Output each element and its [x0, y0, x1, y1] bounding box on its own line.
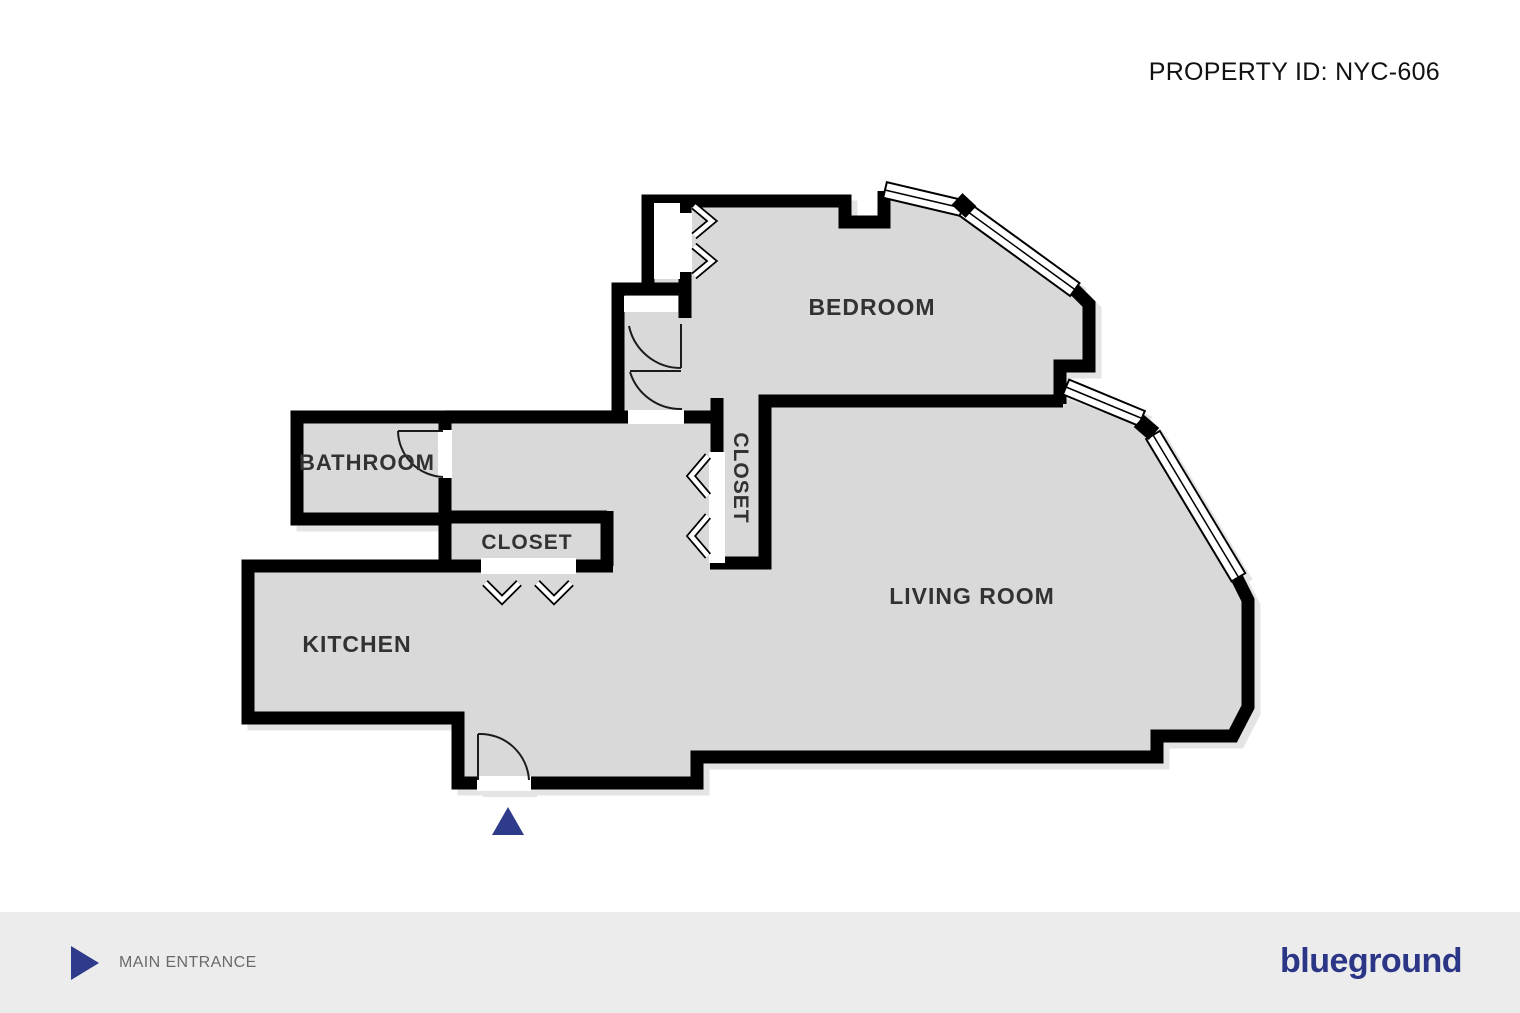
bedroom-closet-shelf	[654, 203, 680, 279]
main-entrance-triangle-icon	[492, 807, 524, 835]
floorplan-page: { "header": { "property_id_label": "PROP…	[0, 0, 1520, 1013]
entrance-legend: MAIN ENTRANCE	[71, 912, 257, 1013]
floorplan-drawing: BEDROOM LIVING ROOM KITCHEN BATHROOM CLO…	[248, 182, 1248, 791]
bathroom-label: BATHROOM	[299, 450, 435, 475]
closet-living-shelf	[709, 452, 725, 563]
closet-hall-label: CLOSET	[481, 531, 572, 554]
floorplan-canvas: BEDROOM LIVING ROOM KITCHEN BATHROOM CLO…	[0, 0, 1520, 1013]
entry-floor	[453, 712, 703, 787]
entrance-triangle-icon	[71, 946, 99, 980]
entrance-door-opening	[477, 776, 531, 791]
window-joint	[957, 199, 971, 212]
vestibule-door-opening	[628, 410, 684, 424]
brand-logo: blueground	[1280, 912, 1462, 1013]
closet-hall-opening	[481, 558, 576, 574]
entrance-label: MAIN ENTRANCE	[119, 954, 257, 972]
property-id: PROPERTY ID: NYC-606	[1149, 58, 1440, 87]
kitchen-label: KITCHEN	[302, 631, 411, 657]
bathroom-door-opening	[438, 430, 452, 478]
living-room-label: LIVING ROOM	[889, 583, 1055, 609]
closet-living-label: CLOSET	[729, 432, 752, 523]
window-joint	[1139, 421, 1154, 434]
bedroom-label: BEDROOM	[808, 294, 935, 320]
vestibule-shelf	[624, 296, 678, 312]
bedroom-closet-opening	[678, 213, 692, 272]
footer-legend: MAIN ENTRANCE blueground	[0, 912, 1520, 1013]
